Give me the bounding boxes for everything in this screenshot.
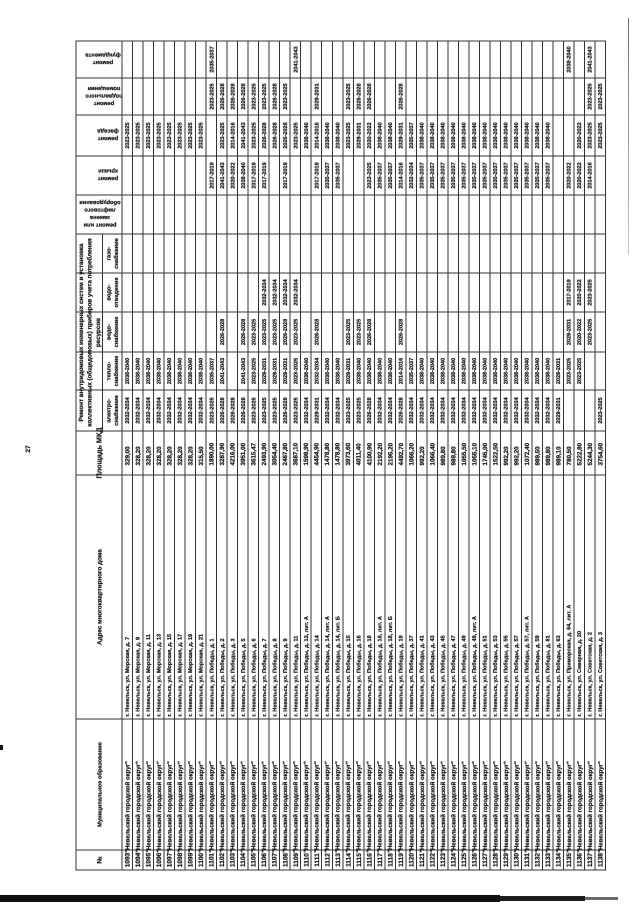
svg-text:989,10: 989,10 — [555, 446, 562, 465]
svg-text:2035-2037: 2035-2037 — [209, 46, 215, 72]
svg-text:1104: 1104 — [239, 853, 247, 867]
svg-text:1134: 1134 — [555, 853, 563, 867]
svg-text:2023-2025: 2023-2025 — [251, 122, 257, 148]
svg-text:2026-2028: 2026-2028 — [282, 397, 288, 423]
svg-text:ремонт: ремонт — [98, 176, 119, 182]
svg-text:"Невельский городской округ": "Невельский городской округ" — [502, 761, 509, 853]
svg-text:2026-2028: 2026-2028 — [219, 319, 225, 345]
svg-text:"Невельский городской округ": "Невельский городской округ" — [523, 761, 530, 853]
svg-text:992,20: 992,20 — [502, 446, 509, 465]
svg-text:2014-2016: 2014-2016 — [587, 162, 593, 188]
svg-text:2014-2016: 2014-2016 — [314, 122, 320, 148]
svg-text:2032-2034: 2032-2034 — [377, 397, 383, 424]
svg-text:1122: 1122 — [428, 853, 436, 867]
svg-text:2038-2040: 2038-2040 — [440, 358, 446, 384]
svg-text:крыши: крыши — [98, 168, 118, 174]
svg-text:2038-2040: 2038-2040 — [356, 358, 362, 384]
svg-text:2023-2025: 2023-2025 — [282, 83, 288, 109]
svg-text:"Невельский городской округ": "Невельский городской округ" — [292, 761, 299, 853]
svg-text:1111: 1111 — [313, 853, 321, 866]
svg-text:4100,90: 4100,90 — [366, 443, 373, 466]
svg-text:2041-2043: 2041-2043 — [240, 122, 246, 148]
svg-text:1478,80: 1478,80 — [334, 443, 341, 466]
svg-text:2023-2025: 2023-2025 — [293, 358, 299, 384]
svg-text:помещения: помещения — [88, 85, 121, 91]
svg-text:1124: 1124 — [449, 853, 457, 867]
svg-text:2038-2040: 2038-2040 — [524, 122, 530, 148]
svg-text:г. Невельск, ул. Победы, д. 47: г. Невельск, ул. Победы, д. 47 — [451, 635, 457, 716]
svg-text:2038-2040: 2038-2040 — [493, 358, 499, 384]
svg-text:2014-2016: 2014-2016 — [230, 122, 236, 148]
svg-text:3951,00: 3951,00 — [240, 443, 247, 466]
svg-text:фундамента: фундамента — [85, 52, 121, 58]
svg-text:Ремонт внутридомовых инженерны: Ремонт внутридомовых инженерных систем и… — [78, 243, 85, 422]
svg-text:989,80: 989,80 — [439, 446, 446, 465]
svg-text:"Невельский городской округ": "Невельский городской округ" — [208, 761, 215, 853]
svg-text:"Невельский городской округ": "Невельский городской округ" — [387, 761, 394, 853]
svg-text:2032-2034: 2032-2034 — [451, 397, 457, 424]
svg-text:2023-2025: 2023-2025 — [177, 122, 183, 148]
svg-text:2023-2025: 2023-2025 — [577, 358, 583, 384]
svg-text:снабжение: снабжение — [114, 238, 120, 269]
svg-text:1100: 1100 — [197, 853, 205, 867]
svg-text:"Невельский городской округ": "Невельский городской округ" — [124, 761, 131, 853]
svg-text:"Невельский городской округ": "Невельский городской округ" — [145, 761, 152, 853]
svg-text:г. Невельск, ул. Победы, д. 55: г. Невельск, ул. Победы, д. 55 — [503, 635, 509, 716]
svg-text:2026-2028: 2026-2028 — [282, 122, 288, 148]
svg-text:1123: 1123 — [439, 853, 447, 867]
svg-text:г. Невельск, ул. Победы, д. 7: г. Невельск, ул. Победы, д. 7 — [261, 638, 267, 716]
svg-text:2023-2025: 2023-2025 — [261, 83, 267, 109]
svg-text:г. Невельск, ул. Победы, д. 16: г. Невельск, ул. Победы, д. 16 — [356, 635, 362, 716]
svg-text:г. Невельск, ул. Победы, д. 49: г. Невельск, ул. Победы, д. 49, лит. А — [472, 616, 478, 716]
svg-text:1138: 1138 — [597, 853, 605, 867]
svg-text:2032-2034: 2032-2034 — [535, 397, 541, 424]
svg-text:1093: 1093 — [124, 853, 132, 867]
svg-text:1137: 1137 — [586, 853, 594, 867]
svg-text:1890,00: 1890,00 — [208, 443, 215, 466]
svg-text:1094: 1094 — [134, 852, 142, 867]
svg-text:г. Невельск, ул. Морская, д. 1: г. Невельск, ул. Морская, д. 15 — [167, 634, 173, 717]
svg-text:2023-2025: 2023-2025 — [272, 397, 278, 423]
svg-text:г. Невельск, ул. Приморская, д: г. Невельск, ул. Приморская, д. 64, лит.… — [566, 605, 572, 717]
svg-text:1066,40: 1066,40 — [429, 443, 436, 466]
svg-text:2035-2037: 2035-2037 — [387, 162, 393, 188]
svg-text:2023-2025: 2023-2025 — [366, 162, 372, 188]
svg-text:989,80: 989,80 — [450, 446, 457, 465]
svg-text:2026-2028: 2026-2028 — [230, 397, 236, 423]
svg-text:2020-2022: 2020-2022 — [230, 162, 236, 188]
svg-text:2023-2025: 2023-2025 — [345, 319, 351, 345]
svg-text:2023-2025: 2023-2025 — [293, 122, 299, 148]
svg-text:г. Невельск, ул. Морская, д. 1: г. Невельск, ул. Морская, д. 17 — [177, 634, 183, 717]
svg-text:992,20: 992,20 — [513, 446, 520, 465]
svg-text:2035-2037: 2035-2037 — [324, 162, 330, 188]
svg-text:"Невельский городской округ": "Невельский городской округ" — [261, 761, 268, 853]
svg-text:2020-2022: 2020-2022 — [577, 122, 583, 148]
svg-text:1105: 1105 — [250, 853, 258, 867]
svg-text:2020-2022: 2020-2022 — [577, 162, 583, 188]
svg-text:г. Невельск, ул. Победы, д. 61: г. Невельск, ул. Победы, д. 61 — [545, 635, 551, 716]
svg-text:2014-2016: 2014-2016 — [398, 358, 404, 384]
svg-text:"Невельский городской округ": "Невельский городской округ" — [282, 761, 289, 853]
svg-text:1072,40: 1072,40 — [523, 443, 530, 466]
svg-text:328,20: 328,20 — [134, 446, 141, 465]
svg-text:"Невельский городской округ": "Невельский городской округ" — [439, 761, 446, 853]
svg-text:2032-2034: 2032-2034 — [261, 279, 267, 306]
svg-text:2032-2034: 2032-2034 — [409, 162, 415, 189]
svg-text:"Невельский городской округ": "Невельский городской округ" — [586, 761, 593, 853]
svg-text:1114: 1114 — [344, 853, 352, 867]
svg-text:2026-2028: 2026-2028 — [219, 83, 225, 109]
svg-text:1102: 1102 — [218, 853, 226, 867]
svg-text:1106: 1106 — [260, 853, 268, 867]
svg-text:3973,60: 3973,60 — [345, 443, 352, 466]
svg-text:2038-2040: 2038-2040 — [303, 358, 309, 384]
svg-text:г. Невельск, ул. Победы, д. 53: г. Невельск, ул. Победы, д. 53 — [493, 635, 499, 716]
svg-text:1113: 1113 — [334, 853, 342, 867]
svg-text:снабжение: снабжение — [114, 356, 120, 387]
svg-text:2023-2025: 2023-2025 — [198, 122, 204, 148]
svg-text:2032-2034: 2032-2034 — [303, 397, 309, 424]
svg-text:2026-2028: 2026-2028 — [272, 83, 278, 109]
svg-text:1055,10: 1055,10 — [471, 443, 478, 466]
svg-text:г. Невельск, ул. Победы, д. 57: г. Невельск, ул. Победы, д. 57, лит. А — [524, 616, 530, 716]
svg-text:2029-2031: 2029-2031 — [282, 358, 288, 384]
svg-text:"Невельский городской округ": "Невельский городской округ" — [366, 761, 373, 853]
svg-text:г. Невельск, ул. Победы, д. 14: г. Невельск, ул. Победы, д. 14, лит. Б — [335, 616, 341, 716]
svg-text:2038-2040: 2038-2040 — [419, 358, 425, 384]
svg-text:2038-2040: 2038-2040 — [303, 122, 309, 148]
svg-text:"Невельский городской округ": "Невельский городской округ" — [187, 761, 194, 853]
svg-text:2023-2025: 2023-2025 — [345, 83, 351, 109]
svg-text:2038-2040: 2038-2040 — [125, 358, 131, 384]
svg-text:2023-2025: 2023-2025 — [272, 319, 278, 345]
svg-text:2032-2034: 2032-2034 — [419, 397, 425, 424]
svg-text:2035-2037: 2035-2037 — [430, 162, 436, 188]
svg-text:г. Невельск, ул. Морская, д. 1: г. Невельск, ул. Морская, д. 11 — [146, 634, 152, 716]
svg-text:2038-2040: 2038-2040 — [461, 358, 467, 384]
svg-text:2032-2034: 2032-2034 — [282, 279, 288, 306]
svg-text:3754,60: 3754,60 — [597, 443, 604, 466]
svg-text:"Невельский городской округ": "Невельский городской округ" — [219, 761, 226, 853]
svg-text:2035-2037: 2035-2037 — [419, 162, 425, 188]
svg-text:2041-2043: 2041-2043 — [587, 46, 593, 72]
svg-text:2023-2025: 2023-2025 — [209, 83, 215, 109]
svg-text:лифтового: лифтового — [84, 207, 115, 213]
svg-text:г. Невельск, ул. Победы, д. 63: г. Невельск, ул. Победы, д. 63 — [556, 635, 562, 716]
svg-text:2023-2025: 2023-2025 — [598, 397, 604, 423]
svg-text:2032-2034: 2032-2034 — [324, 397, 330, 424]
svg-text:4011,40: 4011,40 — [355, 443, 362, 465]
svg-text:"Невельский городской округ": "Невельский городской округ" — [376, 761, 383, 853]
svg-text:2020-2022: 2020-2022 — [366, 122, 372, 148]
svg-text:2026-2028: 2026-2028 — [261, 122, 267, 148]
svg-text:2026-2028: 2026-2028 — [398, 319, 404, 345]
svg-text:2026-2028: 2026-2028 — [230, 83, 236, 109]
svg-text:2038-2040: 2038-2040 — [198, 358, 204, 384]
svg-text:2035-2037: 2035-2037 — [209, 358, 215, 384]
svg-text:г. Невельск, ул. Победы, д. 1: г. Невельск, ул. Победы, д. 1 — [209, 638, 215, 716]
svg-text:2035-2037: 2035-2037 — [514, 162, 520, 188]
svg-text:2029-2031: 2029-2031 — [398, 122, 404, 148]
svg-text:снабжение: снабжение — [114, 317, 120, 348]
svg-text:1119: 1119 — [397, 853, 405, 867]
svg-text:2038-2040: 2038-2040 — [377, 122, 383, 148]
svg-text:2026-2028: 2026-2028 — [272, 122, 278, 148]
svg-text:2032-2034: 2032-2034 — [272, 279, 278, 306]
svg-text:4216,00: 4216,00 — [229, 443, 236, 466]
svg-text:989,50: 989,50 — [534, 446, 541, 465]
svg-text:"Невельский городской округ": "Невельский городской округ" — [576, 761, 583, 853]
svg-text:г. Невельск, ул. Победы, д. 57: г. Невельск, ул. Победы, д. 57 — [514, 635, 520, 716]
svg-text:Адрес многоквартирного дома: Адрес многоквартирного дома — [96, 549, 103, 645]
svg-text:2035-2037: 2035-2037 — [535, 162, 541, 188]
svg-text:2038-2040: 2038-2040 — [503, 358, 509, 384]
svg-text:2017-2019: 2017-2019 — [251, 162, 257, 188]
svg-text:1096: 1096 — [155, 853, 163, 867]
svg-text:989,80: 989,80 — [544, 446, 551, 465]
svg-text:2038-2040: 2038-2040 — [472, 358, 478, 384]
svg-text:г. Невельск, ул. Победы, д. 18: г. Невельск, ул. Победы, д. 18, лит. Б — [387, 616, 393, 716]
svg-text:2023-2025: 2023-2025 — [251, 319, 257, 345]
svg-text:2038-2040: 2038-2040 — [545, 122, 551, 148]
svg-text:г. Невельск, ул. Победы, д. 15: г. Невельск, ул. Победы, д. 15 — [345, 635, 351, 716]
svg-text:2038-2040: 2038-2040 — [324, 122, 330, 148]
svg-text:2026-2028: 2026-2028 — [366, 397, 372, 423]
svg-text:2038-2040: 2038-2040 — [156, 358, 162, 384]
svg-text:2029-2031: 2029-2031 — [314, 397, 320, 423]
svg-text:2041-2043: 2041-2043 — [219, 162, 225, 188]
svg-text:г. Невельск, ул. Победы, д. 6: г. Невельск, ул. Победы, д. 6 — [251, 638, 257, 716]
svg-text:2026-2028: 2026-2028 — [356, 83, 362, 109]
svg-text:2023-2025: 2023-2025 — [587, 319, 593, 345]
svg-text:г. Невельск, ул. Победы, д. 45: г. Невельск, ул. Победы, д. 45 — [440, 635, 446, 716]
svg-text:2038-2040: 2038-2040 — [524, 358, 530, 384]
svg-text:2023-2025: 2023-2025 — [293, 397, 299, 423]
svg-text:2023-2025: 2023-2025 — [587, 279, 593, 305]
svg-text:2023-2025: 2023-2025 — [167, 122, 173, 148]
svg-text:"Невельский городской округ": "Невельский городской округ" — [240, 761, 247, 853]
svg-text:2035-2037: 2035-2037 — [524, 162, 530, 188]
svg-text:315,50: 315,50 — [198, 446, 205, 465]
svg-text:2017-2019: 2017-2019 — [209, 162, 215, 188]
svg-text:г. Невельск, ул. Победы, д. 2: г. Невельск, ул. Победы, д. 2 — [219, 638, 225, 716]
svg-text:2032-2034: 2032-2034 — [293, 279, 299, 306]
svg-text:2032-2034: 2032-2034 — [167, 397, 173, 424]
svg-text:г. Невельск, ул. Победы, д. 5: г. Невельск, ул. Победы, д. 5 — [240, 638, 246, 716]
svg-text:2038-2040: 2038-2040 — [430, 358, 436, 384]
svg-text:2032-2034: 2032-2034 — [461, 397, 467, 424]
svg-text:"Невельский городской округ": "Невельский городской округ" — [450, 761, 457, 853]
svg-text:2035-2037: 2035-2037 — [335, 162, 341, 188]
svg-text:2023-2025: 2023-2025 — [219, 122, 225, 148]
svg-text:2038-2040: 2038-2040 — [440, 122, 446, 148]
svg-text:отведение: отведение — [114, 278, 120, 308]
svg-text:2038-2040: 2038-2040 — [472, 122, 478, 148]
svg-text:2038-2040: 2038-2040 — [566, 46, 572, 72]
svg-text:г. Невельск, ул. Победы, д. 18: г. Невельск, ул. Победы, д. 18, лит. А — [377, 616, 383, 716]
svg-text:2023-2025: 2023-2025 — [146, 122, 152, 148]
svg-text:2038-2040: 2038-2040 — [514, 358, 520, 384]
svg-text:1115: 1115 — [355, 853, 363, 867]
svg-text:1126: 1126 — [470, 853, 478, 867]
svg-text:2023-2025: 2023-2025 — [261, 319, 267, 345]
svg-text:2035-2037: 2035-2037 — [451, 162, 457, 188]
svg-text:4492,70: 4492,70 — [397, 443, 404, 466]
svg-text:"Невельский городской округ": "Невельский городской округ" — [597, 761, 604, 853]
svg-text:2038-2040: 2038-2040 — [451, 122, 457, 148]
svg-text:2029-2031: 2029-2031 — [356, 122, 362, 148]
svg-text:2026-2028: 2026-2028 — [398, 397, 404, 423]
svg-text:1127: 1127 — [481, 853, 489, 867]
svg-text:2032-2034: 2032-2034 — [335, 397, 341, 424]
svg-text:2038-2040: 2038-2040 — [324, 358, 330, 384]
svg-text:2493,90: 2493,90 — [261, 443, 268, 466]
svg-text:подвального: подвального — [85, 93, 122, 99]
svg-text:ремонт: ремонт — [98, 136, 119, 142]
svg-text:2026-2028: 2026-2028 — [240, 397, 246, 423]
svg-text:2487,80: 2487,80 — [282, 443, 289, 466]
svg-text:2038-2040: 2038-2040 — [335, 358, 341, 384]
svg-text:2026-2028: 2026-2028 — [240, 319, 246, 345]
svg-text:г. Невельск, ул. Победы, д. 59: г. Невельск, ул. Победы, д. 59 — [535, 635, 541, 716]
svg-text:2023-2025: 2023-2025 — [135, 122, 141, 148]
svg-text:2035-2037: 2035-2037 — [440, 162, 446, 188]
svg-text:г. Невельск, ул. Победы, д. 14: г. Невельск, ул. Победы, д. 14 — [314, 635, 320, 717]
svg-text:2029-2031: 2029-2031 — [566, 319, 572, 345]
svg-text:2032-2034: 2032-2034 — [482, 397, 488, 424]
svg-text:2032-2034: 2032-2034 — [135, 397, 141, 424]
svg-text:2023-2025: 2023-2025 — [566, 358, 572, 384]
svg-text:992,20: 992,20 — [418, 446, 425, 465]
svg-text:2032-2034: 2032-2034 — [314, 357, 320, 384]
svg-text:г. Невельск, ул. Советская, д.: г. Невельск, ул. Советская, д. 3 — [598, 632, 604, 716]
svg-text:2029-2031: 2029-2031 — [261, 358, 267, 384]
svg-text:1121: 1121 — [418, 853, 426, 867]
svg-text:4454,90: 4454,90 — [313, 443, 320, 466]
svg-text:328,20: 328,20 — [166, 446, 173, 465]
svg-text:2023-2025: 2023-2025 — [356, 397, 362, 423]
svg-text:2023-2025: 2023-2025 — [345, 397, 351, 423]
svg-text:2032-2034: 2032-2034 — [514, 397, 520, 424]
svg-text:г. Невельск, ул. Победы, д. 41: г. Невельск, ул. Победы, д. 41 — [419, 635, 425, 716]
svg-text:1116: 1116 — [365, 853, 373, 867]
svg-text:г. Невельск, ул. Победы, д. 49: г. Невельск, ул. Победы, д. 49 — [461, 635, 467, 716]
svg-text:"Невельский городской округ": "Невельский городской округ" — [355, 761, 362, 853]
svg-text:1095: 1095 — [145, 853, 153, 867]
svg-text:2038-2040: 2038-2040 — [167, 358, 173, 384]
svg-text:"Невельский городской округ": "Невельский городской округ" — [229, 761, 236, 853]
svg-text:2038-2040: 2038-2040 — [451, 358, 457, 384]
svg-text:г. Невельск, ул. Победы, д. 43: г. Невельск, ул. Победы, д. 43 — [430, 635, 436, 716]
svg-text:фасада: фасада — [97, 128, 119, 134]
svg-text:2038-2040: 2038-2040 — [535, 122, 541, 148]
svg-text:2041-2043: 2041-2043 — [219, 358, 225, 384]
svg-text:2032-2034: 2032-2034 — [125, 397, 131, 424]
svg-text:2038-2040: 2038-2040 — [482, 122, 488, 148]
svg-text:2032-2034: 2032-2034 — [198, 397, 204, 424]
svg-text:2041-2043: 2041-2043 — [293, 46, 299, 72]
svg-text:2035-2037: 2035-2037 — [503, 162, 509, 188]
svg-text:2038-2040: 2038-2040 — [177, 358, 183, 384]
svg-text:1117: 1117 — [376, 853, 384, 867]
svg-text:2023-2025: 2023-2025 — [587, 122, 593, 148]
svg-text:Площадь МКД: Площадь МКД — [95, 427, 103, 478]
svg-text:2023-2025: 2023-2025 — [188, 122, 194, 148]
svg-text:"Невельский городской округ": "Невельский городской округ" — [313, 761, 320, 853]
svg-text:2029-2031: 2029-2031 — [314, 83, 320, 109]
svg-text:газо-: газо- — [106, 247, 112, 261]
svg-text:г. Невельск, ул. Морская, д. 1: г. Невельск, ул. Морская, д. 19 — [188, 634, 194, 717]
svg-text:водо-: водо- — [106, 324, 112, 340]
svg-text:г. Невельск, ул. Морская, д. 9: г. Невельск, ул. Морская, д. 9 — [135, 637, 141, 717]
svg-text:"Невельский городской округ": "Невельский городской округ" — [303, 761, 310, 853]
svg-text:1055,50: 1055,50 — [460, 443, 467, 466]
svg-text:"Невельский городской округ": "Невельский городской округ" — [565, 761, 572, 853]
svg-text:328,20: 328,20 — [145, 446, 152, 465]
svg-text:2023-2025: 2023-2025 — [598, 122, 604, 148]
svg-text:2038-2040: 2038-2040 — [188, 358, 194, 384]
svg-text:2035-2037: 2035-2037 — [461, 162, 467, 188]
svg-text:2020-2022: 2020-2022 — [577, 279, 583, 305]
svg-text:ресурсов: ресурсов — [95, 318, 102, 347]
svg-text:2038-2040: 2038-2040 — [387, 358, 393, 384]
svg-text:1598,90: 1598,90 — [303, 443, 310, 466]
svg-text:2032-2034: 2032-2034 — [409, 397, 415, 424]
svg-text:2038-2040: 2038-2040 — [461, 122, 467, 148]
svg-text:1109: 1109 — [292, 853, 300, 867]
svg-text:2038-2040: 2038-2040 — [387, 122, 393, 148]
svg-text:3054,40: 3054,40 — [271, 443, 278, 466]
svg-text:2032-2034: 2032-2034 — [440, 397, 446, 424]
svg-text:2032-2034: 2032-2034 — [472, 397, 478, 424]
svg-text:1099: 1099 — [187, 853, 195, 867]
svg-text:2029-2031: 2029-2031 — [272, 358, 278, 384]
svg-text:"Невельский городской округ": "Невельский городской округ" — [460, 761, 467, 853]
svg-text:2023-2025: 2023-2025 — [251, 83, 257, 109]
svg-text:1136: 1136 — [576, 853, 584, 867]
svg-text:2038-2040: 2038-2040 — [335, 122, 341, 148]
svg-text:"Невельский городской округ": "Невельский городской округ" — [155, 761, 162, 853]
svg-text:2020-2022: 2020-2022 — [566, 162, 572, 188]
svg-text:снабжение: снабжение — [114, 395, 120, 426]
svg-text:2038-2040: 2038-2040 — [503, 122, 509, 148]
svg-text:"Невельский городской округ": "Невельский городской округ" — [481, 761, 488, 853]
svg-text:1097: 1097 — [166, 853, 174, 867]
svg-text:г. Невельск, ул. Победы, д. 8: г. Невельск, ул. Победы, д. 8 — [272, 638, 278, 716]
svg-text:"Невельский городской округ": "Невельский городской округ" — [429, 761, 436, 853]
svg-text:2032-2034: 2032-2034 — [545, 397, 551, 424]
svg-text:2023-2025: 2023-2025 — [293, 319, 299, 345]
svg-text:"Невельский городской округ": "Невельский городской округ" — [544, 761, 551, 853]
svg-text:"Невельский городской округ": "Невельский городской округ" — [408, 761, 415, 853]
svg-text:1112: 1112 — [323, 853, 331, 867]
svg-text:"Невельский городской округ": "Невельский городской округ" — [324, 761, 331, 853]
svg-text:2026-2028: 2026-2028 — [314, 319, 320, 345]
svg-text:2026-2028: 2026-2028 — [282, 319, 288, 345]
svg-text:"Невельский городской округ": "Невельский городской округ" — [250, 761, 257, 853]
svg-text:г. Невельск, ул. Победы, д. 3: г. Невельск, ул. Победы, д. 3 — [230, 638, 236, 716]
svg-text:1522,50: 1522,50 — [492, 443, 499, 466]
svg-text:2023-2025: 2023-2025 — [261, 397, 267, 423]
svg-text:ремонт: ремонт — [94, 100, 115, 106]
svg-text:1108: 1108 — [281, 853, 289, 867]
svg-text:"Невельский городской округ": "Невельский городской округ" — [397, 761, 404, 853]
svg-text:1135: 1135 — [565, 853, 573, 867]
svg-text:г. Невельск, ул. Победы, д. 11: г. Невельск, ул. Победы, д. 11 — [293, 636, 299, 717]
svg-text:г. Невельск, ул. Морская, д. 2: г. Невельск, ул. Морская, д. 21 — [198, 634, 204, 717]
